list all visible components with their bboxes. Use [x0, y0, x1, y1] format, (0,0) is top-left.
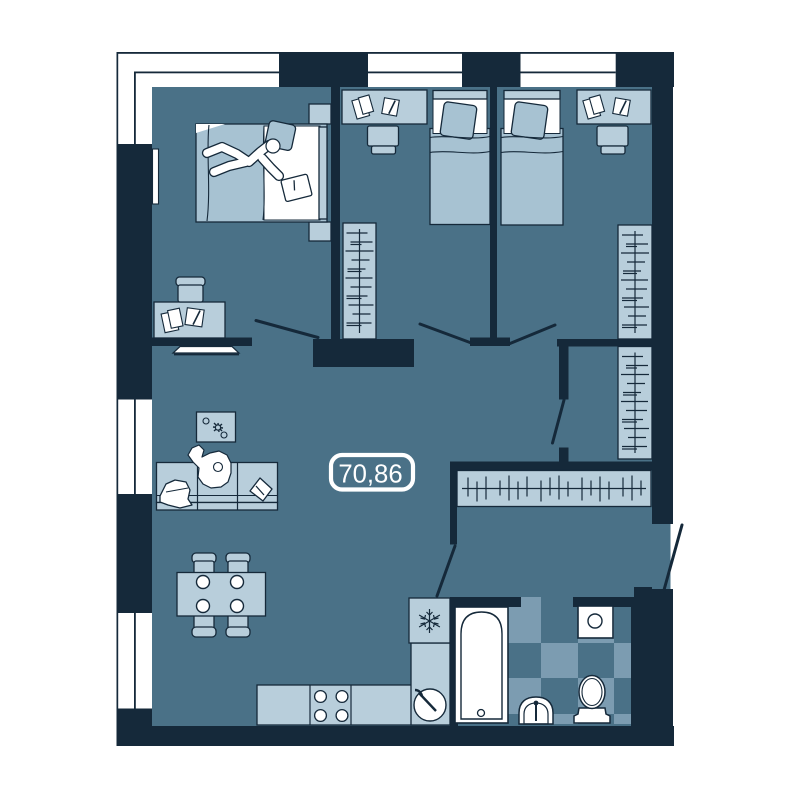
svg-text:70,86: 70,86: [338, 461, 402, 489]
